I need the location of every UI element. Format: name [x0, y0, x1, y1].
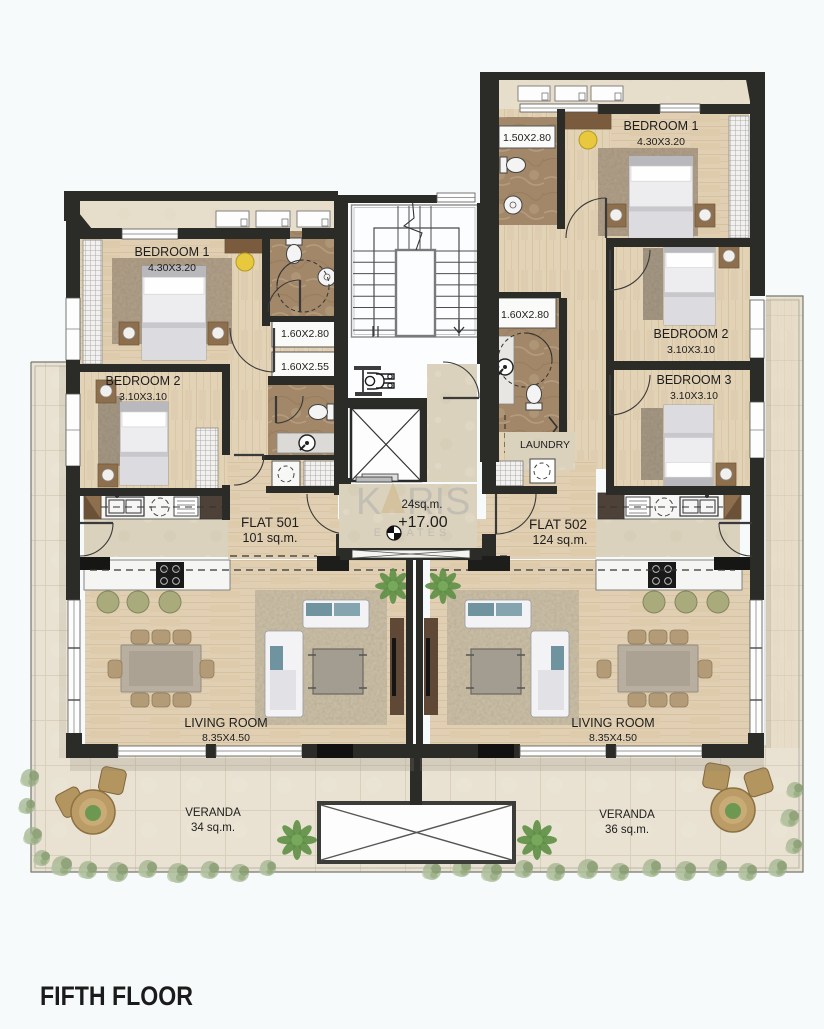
svg-text:FLAT 502: FLAT 502	[529, 517, 587, 532]
svg-text:4.30X3.20: 4.30X3.20	[637, 136, 685, 148]
svg-text:4.30X3.20: 4.30X3.20	[148, 262, 196, 274]
svg-text:VERANDA: VERANDA	[185, 807, 241, 819]
svg-text:1.60X2.80: 1.60X2.80	[501, 309, 549, 321]
svg-text:BEDROOM 2: BEDROOM 2	[105, 374, 180, 388]
svg-text:3.10X3.10: 3.10X3.10	[119, 391, 167, 403]
svg-text:BEDROOM 3: BEDROOM 3	[656, 373, 731, 387]
svg-text:FIFTH FLOOR: FIFTH FLOOR	[40, 981, 193, 1011]
svg-text:K: K	[356, 481, 381, 523]
svg-text:BEDROOM 1: BEDROOM 1	[623, 119, 698, 133]
svg-text:34 sq.m.: 34 sq.m.	[191, 822, 235, 834]
svg-text:8.35X4.50: 8.35X4.50	[589, 732, 637, 744]
svg-text:36 sq.m.: 36 sq.m.	[605, 824, 649, 836]
svg-text:LIVING ROOM: LIVING ROOM	[571, 716, 654, 730]
svg-text:8.35X4.50: 8.35X4.50	[202, 732, 250, 744]
svg-text:1.60X2.80: 1.60X2.80	[281, 328, 329, 340]
svg-text:LIVING ROOM: LIVING ROOM	[184, 716, 267, 730]
svg-text:LAUNDRY: LAUNDRY	[520, 439, 570, 451]
svg-text:BEDROOM 1: BEDROOM 1	[134, 245, 209, 259]
svg-text:1.50X2.80: 1.50X2.80	[503, 132, 551, 144]
svg-text:FLAT 501: FLAT 501	[241, 515, 299, 530]
svg-text:+17.00: +17.00	[398, 514, 447, 531]
svg-text:1.60X2.55: 1.60X2.55	[281, 361, 329, 373]
svg-text:24sq.m.: 24sq.m.	[402, 499, 443, 511]
svg-text:3.10X3.10: 3.10X3.10	[670, 390, 718, 402]
svg-text:3.10X3.10: 3.10X3.10	[667, 344, 715, 356]
svg-text:101 sq.m.: 101 sq.m.	[243, 531, 298, 545]
svg-text:124 sq.m.: 124 sq.m.	[533, 533, 588, 547]
svg-text:BEDROOM 2: BEDROOM 2	[653, 327, 728, 341]
svg-text:VERANDA: VERANDA	[599, 809, 655, 821]
